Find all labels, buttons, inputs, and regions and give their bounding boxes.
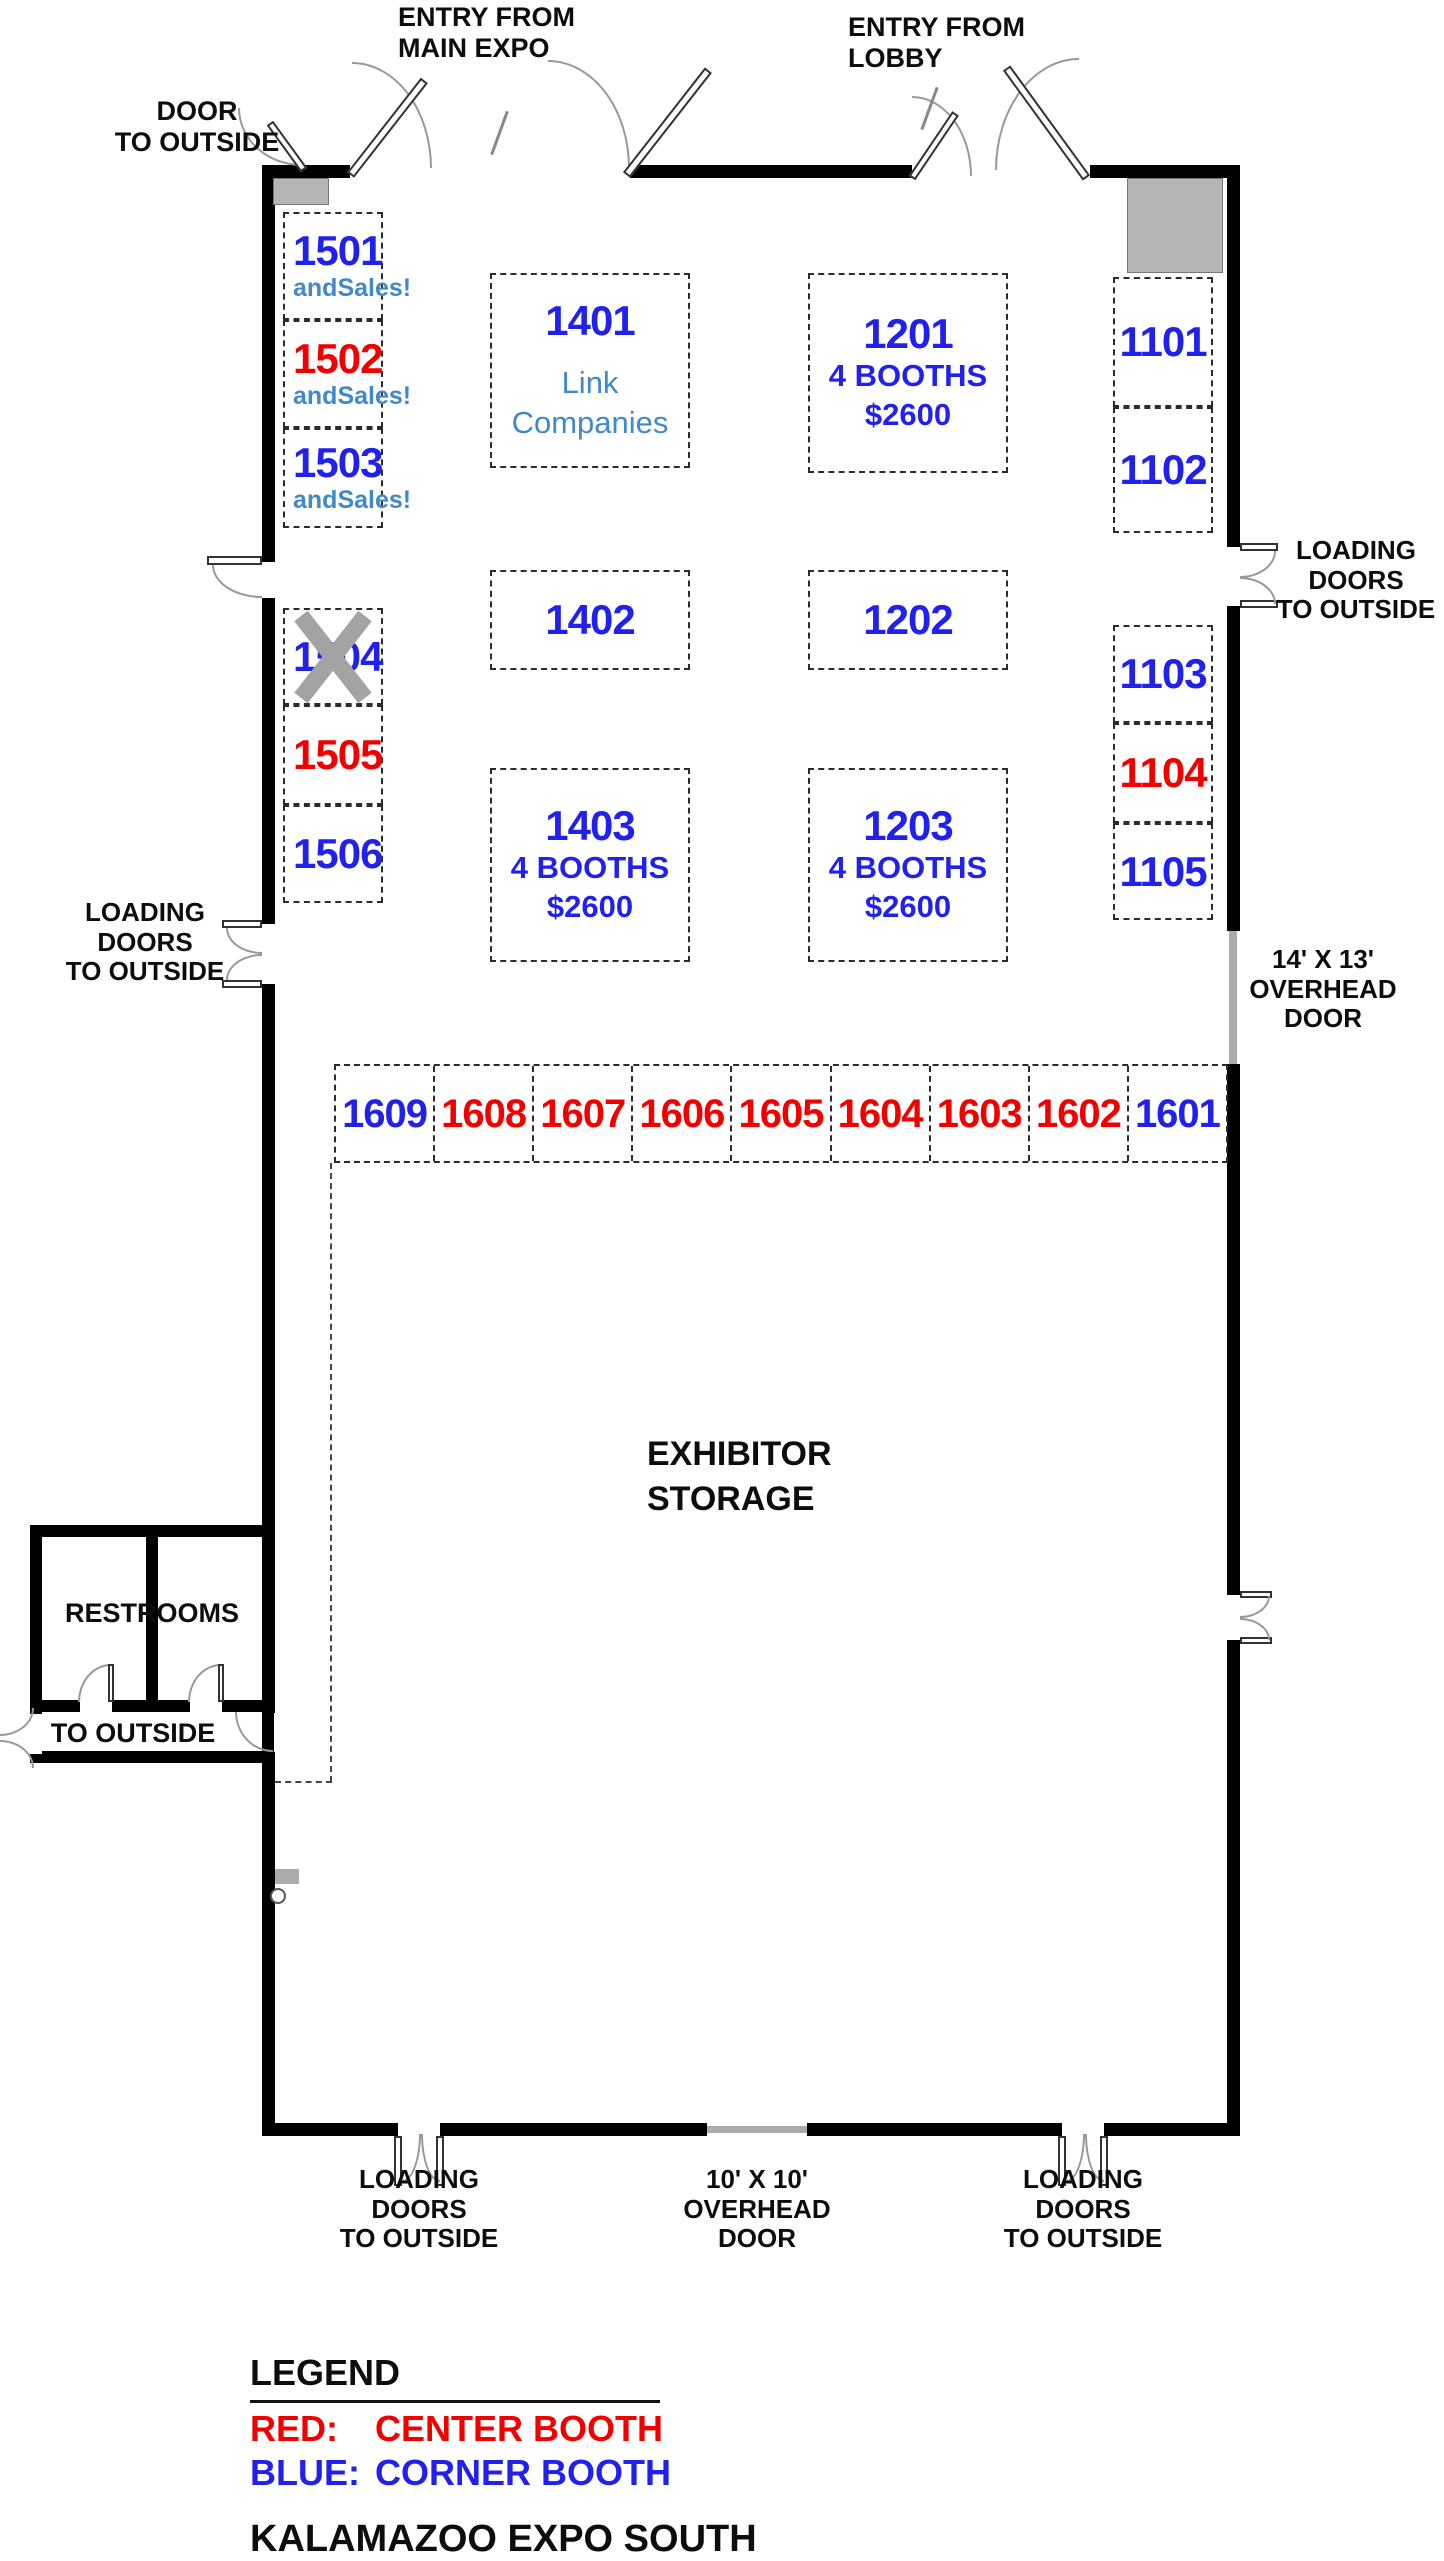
booth-1402[interactable]: 1402: [490, 570, 690, 670]
legend-rule: [250, 2400, 660, 2403]
wall-top-right: [1090, 165, 1240, 178]
booth-1201[interactable]: 12014 BOOTHS$2600: [808, 273, 1008, 473]
booth-1202[interactable]: 1202: [808, 570, 1008, 670]
wall-left-2: [262, 598, 275, 924]
label-overhead-right: 14' X 13' OVERHEAD DOOR: [1240, 945, 1406, 1034]
label-to-outside: TO OUTSIDE: [38, 1718, 228, 1749]
legend-desc: CENTER BOOTH: [375, 2408, 663, 2449]
booth-info-line: $2600: [865, 397, 951, 433]
booth-number: 1601: [1135, 1094, 1220, 1134]
label-line: TO OUTSIDE: [993, 2224, 1173, 2254]
booth-1605[interactable]: 1605: [730, 1066, 829, 1161]
booth-number: 1201: [863, 313, 952, 355]
booth-1601[interactable]: 1601: [1127, 1066, 1226, 1161]
booth-company-line: Link: [562, 364, 619, 401]
wall-symbol-circle: [270, 1888, 286, 1904]
booth-1203[interactable]: 12034 BOOTHS$2600: [808, 768, 1008, 962]
overhead-door-bottom: [707, 2126, 807, 2133]
booth-1609[interactable]: 1609: [336, 1066, 433, 1161]
booth-1101[interactable]: 1101: [1113, 277, 1213, 407]
booth-info-line: $2600: [865, 889, 951, 925]
wall-bottom-1: [262, 2123, 398, 2136]
booth-sublabel: andSales!: [293, 383, 411, 409]
booth-number: 1602: [1036, 1094, 1121, 1134]
label-line: TO OUTSIDE: [55, 957, 235, 987]
label-line: STORAGE: [647, 1477, 832, 1522]
booth-number: 1502: [293, 338, 382, 380]
door-pushbar: [490, 111, 509, 155]
wall-bottom-4: [1104, 2123, 1240, 2136]
legend-key: BLUE:: [250, 2452, 375, 2493]
label-loading-right: LOADING DOORS TO OUTSIDE: [1268, 536, 1444, 625]
booth-number: 1506: [293, 833, 382, 875]
label-line: TO OUTSIDE: [92, 127, 302, 158]
legend-heading: LEGEND: [250, 2352, 400, 2393]
storage-boundary-horizontal: [275, 1781, 332, 1783]
label-line: DOOR: [1240, 1004, 1406, 1034]
legend-key: RED:: [250, 2408, 375, 2449]
label-overhead-bottom: 10' X 10' OVERHEAD DOOR: [669, 2165, 845, 2254]
label-line: LOADING: [993, 2165, 1173, 2195]
label-door-outside: DOOR TO OUTSIDE: [92, 96, 302, 158]
restroom-bottom-wall-2: [112, 1700, 190, 1712]
legend-entry-blue: BLUE:CORNER BOOTH: [250, 2452, 671, 2493]
booth-number: 1402: [545, 599, 634, 641]
gray-block-top-left: [273, 178, 329, 205]
wall-top-middle: [630, 165, 912, 178]
wall-right-2: [1227, 606, 1240, 931]
booth-number: 1104: [1119, 752, 1206, 794]
door-arc: [0, 1708, 34, 1736]
booth-number: 1607: [540, 1094, 625, 1134]
booth-1504[interactable]: 1504: [283, 608, 383, 705]
wall-left-1: [262, 165, 275, 562]
booth-number: 1203: [863, 805, 952, 847]
booth-number: 1501: [293, 230, 382, 272]
label-line: ENTRY FROM: [398, 2, 575, 33]
label-loading-left: LOADING DOORS TO OUTSIDE: [55, 898, 235, 987]
booth-number: 1609: [342, 1094, 427, 1134]
booth-1401[interactable]: 1401LinkCompanies: [490, 273, 690, 468]
label-line: LOADING: [329, 2165, 509, 2195]
booth-1505[interactable]: 1505: [283, 705, 383, 805]
label-line: LOBBY: [848, 43, 1025, 74]
label-line: DOORS: [993, 2195, 1173, 2225]
booth-1502[interactable]: 1502andSales!: [283, 320, 383, 428]
label-exhibitor-storage: EXHIBITOR STORAGE: [647, 1432, 832, 1522]
label-line: TO OUTSIDE: [329, 2224, 509, 2254]
booth-1607[interactable]: 1607: [532, 1066, 631, 1161]
page-title: KALAMAZOO EXPO SOUTH: [250, 2518, 757, 2561]
booth-sublabel: andSales!: [293, 487, 411, 513]
booth-number: 1505: [293, 734, 382, 776]
booth-number: 1401: [545, 300, 634, 342]
label-line: DOOR: [669, 2224, 845, 2254]
wall-bottom-3: [807, 2123, 1062, 2136]
label-restrooms: RESTROOMS: [42, 1598, 262, 1629]
wall-left-4: [262, 1752, 275, 2136]
label-line: EXHIBITOR: [647, 1432, 832, 1477]
booth-info-line: $2600: [547, 889, 633, 925]
label-loading-bottom-right: LOADING DOORS TO OUTSIDE: [993, 2165, 1173, 2254]
legend-entry-red: RED:CENTER BOOTH: [250, 2408, 663, 2449]
booth-1603[interactable]: 1603: [929, 1066, 1028, 1161]
booth-1608[interactable]: 1608: [433, 1066, 532, 1161]
booth-number: 1101: [1119, 321, 1206, 363]
label-loading-bottom-left: LOADING DOORS TO OUTSIDE: [329, 2165, 509, 2254]
booth-info-line: 4 BOOTHS: [829, 358, 987, 394]
door-arc: [1240, 1596, 1270, 1618]
booth-number: 1608: [441, 1094, 526, 1134]
booth-1105[interactable]: 1105: [1113, 823, 1213, 920]
wall-right-1: [1227, 165, 1240, 547]
booth-number: 1102: [1119, 449, 1206, 491]
wall-right-4: [1227, 1640, 1240, 2136]
door-arc: [0, 1740, 34, 1768]
booth-number: 1604: [838, 1094, 923, 1134]
label-line: DOORS: [55, 928, 235, 958]
label-line: 10' X 10': [669, 2165, 845, 2195]
booth-number: 1103: [1119, 653, 1206, 695]
booth-1503[interactable]: 1503andSales!: [283, 428, 383, 528]
door-leaf: [623, 67, 712, 177]
label-line: OVERHEAD: [669, 2195, 845, 2225]
booth-1506[interactable]: 1506: [283, 805, 383, 903]
door-arc: [1240, 1618, 1270, 1640]
door-leaf: [207, 556, 262, 565]
door-arc: [212, 565, 262, 598]
booth-info-line: 4 BOOTHS: [511, 850, 669, 886]
booth-1501[interactable]: 1501andSales!: [283, 212, 383, 320]
booth-number: 1202: [863, 599, 952, 641]
booth-info-line: 4 BOOTHS: [829, 850, 987, 886]
label-entry-main-expo: ENTRY FROM MAIN EXPO: [398, 2, 575, 64]
gray-block-small-left: [275, 1869, 299, 1884]
restroom-bottom-wall-3: [222, 1700, 262, 1712]
booth-number: 1403: [545, 805, 634, 847]
restroom-bottom-wall-1: [42, 1700, 80, 1712]
label-line: TO OUTSIDE: [1268, 595, 1444, 625]
booth-number: 1605: [739, 1094, 824, 1134]
label-line: LOADING: [55, 898, 235, 928]
booth-number: 1503: [293, 442, 382, 484]
label-line: OVERHEAD: [1240, 975, 1406, 1005]
overhead-door-right: [1229, 931, 1237, 1064]
booth-1604[interactable]: 1604: [830, 1066, 929, 1161]
booth-row-1600: 160916081607160616051604160316021601: [334, 1064, 1228, 1163]
booth-1102[interactable]: 1102: [1113, 407, 1213, 533]
wall-right-3: [1227, 1064, 1240, 1595]
booth-company-line: Companies: [512, 404, 669, 441]
door-leaf: [218, 1664, 224, 1702]
door-arc: [548, 60, 630, 168]
storage-boundary-vertical: [330, 1163, 332, 1782]
booth-number: 1603: [937, 1094, 1022, 1134]
legend-desc: CORNER BOOTH: [375, 2452, 671, 2493]
label-line: LOADING: [1268, 536, 1444, 566]
booth-1403[interactable]: 14034 BOOTHS$2600: [490, 768, 690, 962]
booth-sublabel: andSales!: [293, 275, 411, 301]
booth-number: 1606: [639, 1094, 724, 1134]
label-line: DOOR: [92, 96, 302, 127]
gray-block-top-right: [1127, 178, 1223, 273]
wall-bottom-2: [440, 2123, 707, 2136]
booth-number: 1105: [1119, 851, 1206, 893]
booth-1104[interactable]: 1104: [1113, 723, 1213, 823]
booth-1103[interactable]: 1103: [1113, 625, 1213, 723]
floor-plan: ENTRY FROM MAIN EXPO ENTRY FROM LOBBY DO…: [0, 0, 1444, 2560]
label-line: MAIN EXPO: [398, 33, 575, 64]
booth-1606[interactable]: 1606: [631, 1066, 730, 1161]
label-line: DOORS: [1268, 566, 1444, 596]
label-line: 14' X 13': [1240, 945, 1406, 975]
label-line: ENTRY FROM: [848, 12, 1025, 43]
label-line: DOORS: [329, 2195, 509, 2225]
door-leaf: [108, 1664, 114, 1702]
booth-1602[interactable]: 1602: [1028, 1066, 1127, 1161]
label-entry-lobby: ENTRY FROM LOBBY: [848, 12, 1025, 74]
